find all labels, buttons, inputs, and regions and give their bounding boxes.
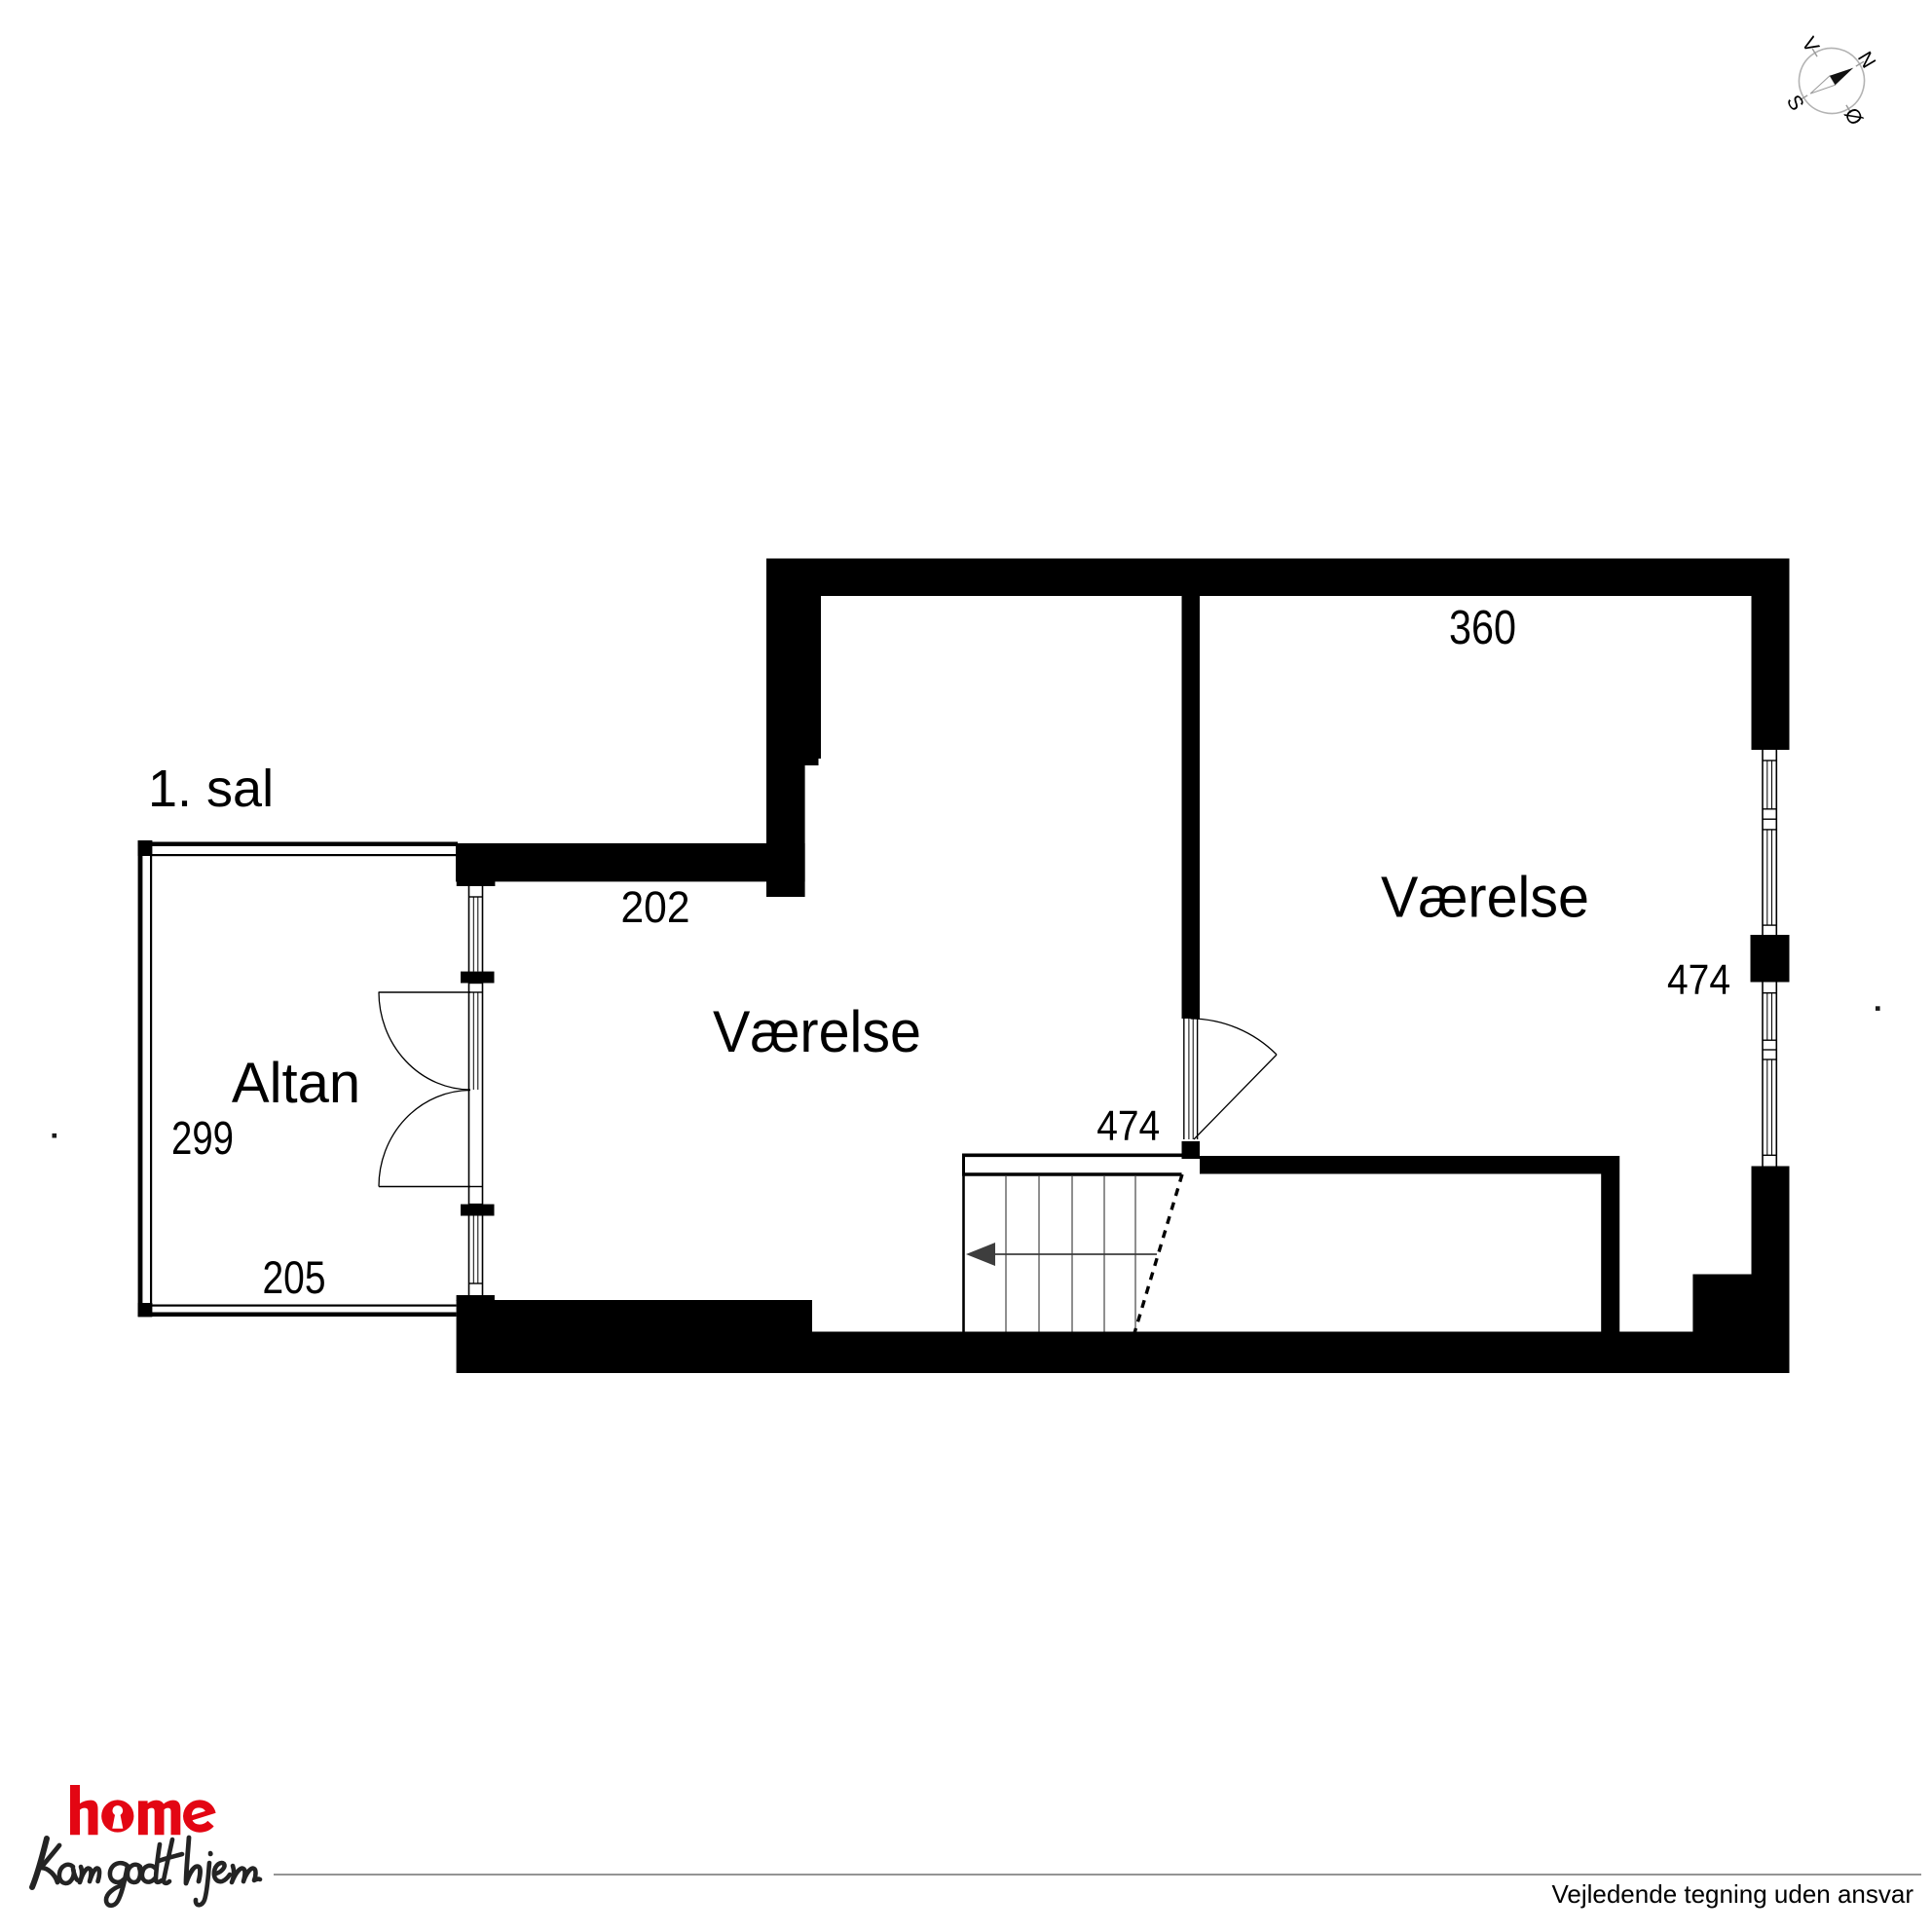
svg-text:205: 205 (263, 1251, 326, 1303)
svg-text:Vejledende tegning uden ansvar: Vejledende tegning uden ansvar (1551, 1879, 1913, 1909)
svg-text:202: 202 (621, 882, 690, 932)
svg-text:Værelse: Værelse (1381, 866, 1589, 930)
svg-text:Værelse: Værelse (713, 999, 921, 1064)
svg-text:Altan: Altan (232, 1052, 360, 1115)
svg-text:1. sal: 1. sal (148, 760, 274, 818)
svg-text:474: 474 (1096, 1102, 1160, 1150)
svg-text:360: 360 (1449, 602, 1516, 654)
svg-text:474: 474 (1667, 956, 1730, 1004)
svg-text:299: 299 (171, 1113, 234, 1165)
